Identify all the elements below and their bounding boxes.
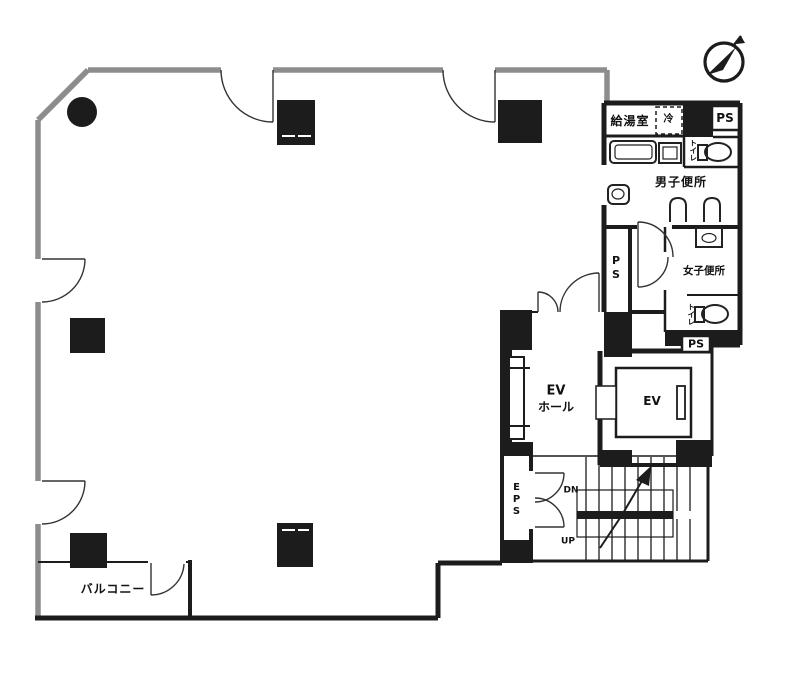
- columns: [67, 97, 542, 568]
- room-label-kitchenette: 給湯室: [610, 115, 649, 127]
- door-left-low: [42, 481, 85, 524]
- elevator-landing-door: [596, 386, 616, 419]
- room-label-ev-hall-line1: EV: [547, 385, 566, 398]
- womens-toilet-bowl: [702, 305, 728, 323]
- room-label-womens-toilet: 女子便所: [683, 266, 725, 277]
- room-label-balcony: バルコニー: [81, 583, 146, 595]
- door-mens: [638, 222, 673, 257]
- door-ev-hall-small: [538, 292, 558, 312]
- column: [277, 100, 315, 145]
- column: [70, 318, 105, 353]
- core-walls: [35, 103, 740, 618]
- elevator-counterweight: [677, 386, 685, 419]
- hand-sink: [608, 185, 629, 204]
- kitchen-sink: [610, 141, 656, 163]
- wall-masses: [500, 103, 740, 563]
- stair-landing-rail: [577, 511, 673, 519]
- door-top-left: [221, 70, 273, 122]
- label-ps-low: PS: [688, 339, 704, 350]
- round-column: [67, 97, 97, 127]
- room-label-ev-hall-line2: ホール: [538, 401, 574, 413]
- label-stairs-up: UP: [561, 538, 575, 547]
- column-slits: [282, 136, 311, 530]
- floor-plan-drawing: [0, 0, 787, 680]
- room-label-mens-toilet: 男子便所: [655, 176, 707, 188]
- north-compass-icon: [705, 36, 745, 81]
- stairs: [577, 457, 690, 560]
- mens-toilet-bowl: [705, 143, 731, 161]
- womens-sink: [696, 228, 722, 247]
- label-toilet-mens: トイレ: [689, 139, 697, 162]
- water-heater: [659, 143, 681, 163]
- label-fridge: 冷: [664, 115, 675, 125]
- door-top-right: [443, 70, 495, 122]
- label-toilet-womens: トイレ: [687, 303, 695, 326]
- urinal: [670, 198, 686, 222]
- column: [498, 100, 542, 143]
- door-ev-hall-large: [560, 273, 599, 312]
- door-womens: [638, 257, 668, 287]
- urinal: [704, 198, 720, 222]
- label-ps-shaft: PS: [611, 254, 622, 282]
- floor-plan: 給湯室 冷 PS 男子便所 トイレ 女子便所 トイレ PS PS EV ホール …: [0, 0, 787, 680]
- column: [70, 533, 107, 568]
- label-ps-top: PS: [716, 112, 733, 124]
- label-stairs-down: DN: [563, 487, 578, 496]
- door-balcony: [151, 563, 184, 595]
- room-label-ev: EV: [643, 395, 660, 407]
- label-eps: EPS: [511, 482, 521, 518]
- door-left-mid: [42, 259, 85, 302]
